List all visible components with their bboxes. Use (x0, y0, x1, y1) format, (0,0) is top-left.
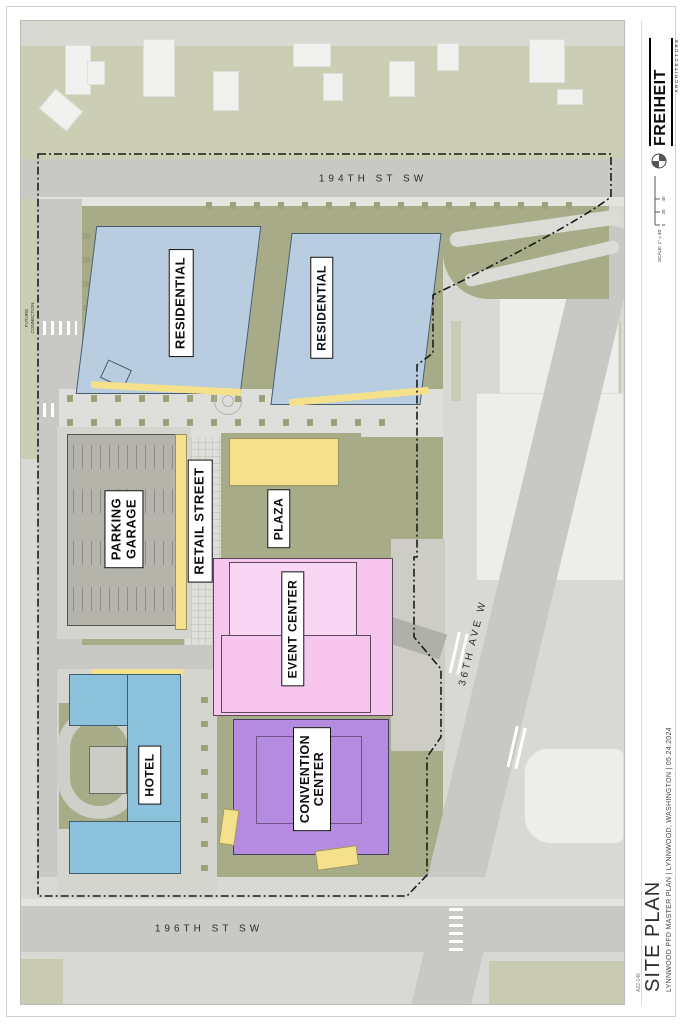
garage-retail-liner (175, 434, 187, 630)
parking-stalls (73, 445, 173, 469)
street-label-196th: 196TH ST SW (155, 924, 263, 935)
scale-tick: 40 (661, 196, 666, 202)
firm-logo-wordmark: FREIHEIT (649, 38, 673, 146)
roundabout-inner (222, 395, 234, 407)
scale-label: SCALE: 1" = 40' (657, 229, 662, 262)
house-footprint (293, 43, 331, 67)
scale-bar: SCALE: 1" = 40' 0 20 40 80 (652, 176, 666, 262)
hotel-building-south-wing (69, 821, 181, 874)
hotel-label: HOTEL (138, 745, 161, 804)
firm-logo: FREIHEIT ARCHITECTURE (649, 38, 679, 146)
plaza-label: PLAZA (267, 490, 290, 549)
road-196th (21, 906, 625, 952)
street-trees (201, 681, 208, 871)
future-connection-note: FUTURE CONNECTION (24, 283, 36, 353)
firm-logo-subtext: ARCHITECTURE (674, 38, 679, 146)
event-center-label: EVENT CENTER (281, 572, 304, 687)
house-footprint (87, 61, 105, 85)
convention-center-label: CONVENTION CENTER (293, 727, 331, 831)
residential-b-building (270, 233, 441, 405)
house-footprint (389, 61, 415, 97)
sheet-title: SITE PLAN (643, 680, 664, 992)
title-block: A22-146 SITE PLAN LYNNWOOD PFD MASTER PL… (636, 680, 673, 992)
crosswalk (43, 321, 77, 335)
sheet-subtitle: LYNNWOOD PFD MASTER PLAN | LYNNWOOD, WAS… (666, 680, 673, 992)
house-footprint (323, 73, 343, 101)
landscape-south (21, 959, 63, 1005)
scale-ruler: 0 20 40 80 (652, 176, 666, 226)
street-trees (206, 202, 586, 209)
north-arrow-icon (650, 152, 668, 170)
retail-street-label: RETAIL STREET (188, 459, 213, 582)
house-footprint (143, 39, 175, 97)
residential-a-label: RESIDENTIAL (169, 249, 194, 357)
site-plan-map: 194TH ST SW 196TH ST SW 36TH AVE W FUTUR… (20, 20, 625, 1005)
promenade-trees (67, 419, 397, 426)
parking-stalls (73, 587, 173, 611)
residential-b-label: RESIDENTIAL (310, 257, 333, 359)
parking-garage-label: PARKING GARAGE (104, 490, 143, 568)
hotel-porte-cochere (89, 746, 127, 794)
scale-tick: 0 (661, 223, 666, 226)
landscape-south (489, 961, 625, 1005)
house-footprint (437, 43, 459, 71)
house-footprint (529, 39, 565, 83)
plaza-pavilion (229, 438, 339, 486)
existing-building (524, 748, 624, 844)
street-label-194th: 194TH ST SW (319, 174, 427, 185)
drawing-sheet: 194TH ST SW 196TH ST SW 36TH AVE W FUTUR… (0, 0, 683, 1024)
scale-tick: 20 (661, 209, 666, 215)
parking-landscape-strip (451, 321, 461, 401)
house-footprint (557, 89, 583, 105)
house-footprint (213, 71, 239, 111)
crosswalk (449, 907, 463, 951)
